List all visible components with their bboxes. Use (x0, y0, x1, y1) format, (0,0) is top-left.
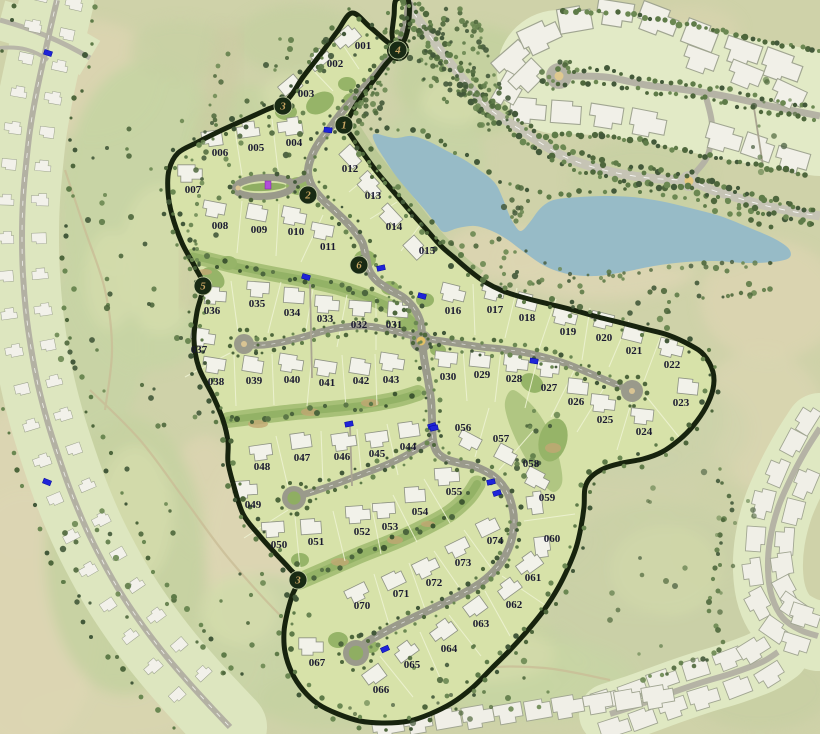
svg-text:006: 006 (212, 147, 229, 159)
svg-text:066: 066 (373, 684, 390, 696)
svg-text:012: 012 (342, 163, 359, 175)
svg-text:056: 056 (455, 422, 472, 434)
svg-text:028: 028 (506, 373, 523, 385)
svg-text:022: 022 (664, 359, 681, 371)
svg-text:070: 070 (354, 600, 371, 612)
svg-text:025: 025 (597, 414, 614, 426)
svg-text:1: 1 (341, 120, 347, 132)
svg-text:005: 005 (248, 142, 265, 154)
svg-text:057: 057 (493, 433, 510, 445)
svg-text:045: 045 (369, 448, 386, 460)
svg-text:072: 072 (426, 577, 443, 589)
svg-text:003: 003 (298, 88, 315, 100)
svg-text:029: 029 (474, 369, 491, 381)
svg-text:013: 013 (365, 190, 382, 202)
svg-text:3: 3 (294, 575, 301, 587)
svg-text:041: 041 (319, 377, 336, 389)
svg-text:007: 007 (185, 184, 202, 196)
svg-text:053: 053 (382, 521, 399, 533)
svg-text:035: 035 (249, 298, 266, 310)
svg-text:6: 6 (356, 260, 362, 272)
svg-text:014: 014 (386, 221, 403, 233)
svg-text:4: 4 (394, 45, 401, 57)
svg-text:030: 030 (440, 371, 457, 383)
svg-text:054: 054 (412, 506, 429, 518)
svg-text:046: 046 (334, 451, 351, 463)
svg-text:017: 017 (487, 304, 504, 316)
svg-text:059: 059 (539, 492, 556, 504)
svg-text:040: 040 (284, 374, 301, 386)
svg-text:038: 038 (208, 376, 225, 388)
svg-text:032: 032 (351, 319, 368, 331)
svg-text:031: 031 (386, 319, 403, 331)
svg-text:011: 011 (320, 241, 336, 253)
svg-text:071: 071 (393, 588, 410, 600)
svg-text:5: 5 (200, 281, 206, 293)
svg-text:073: 073 (455, 557, 472, 569)
svg-text:001: 001 (355, 40, 372, 52)
svg-text:048: 048 (254, 461, 271, 473)
svg-text:015: 015 (419, 245, 436, 257)
svg-text:036: 036 (204, 305, 221, 317)
svg-text:064: 064 (441, 643, 458, 655)
svg-text:051: 051 (308, 536, 325, 548)
svg-text:055: 055 (446, 486, 463, 498)
svg-text:037: 037 (191, 344, 208, 356)
svg-text:065: 065 (404, 659, 421, 671)
svg-text:050: 050 (271, 539, 288, 551)
svg-text:021: 021 (626, 345, 643, 357)
svg-text:019: 019 (560, 326, 577, 338)
svg-text:074: 074 (487, 535, 504, 547)
svg-text:2: 2 (304, 190, 311, 202)
svg-text:061: 061 (525, 572, 542, 584)
svg-text:049: 049 (245, 499, 262, 511)
svg-text:016: 016 (445, 305, 462, 317)
svg-text:002: 002 (327, 58, 344, 70)
svg-text:009: 009 (251, 224, 268, 236)
svg-text:3: 3 (279, 101, 286, 113)
svg-text:008: 008 (212, 220, 229, 232)
svg-text:018: 018 (519, 312, 536, 324)
svg-text:060: 060 (544, 533, 561, 545)
svg-text:044: 044 (400, 441, 417, 453)
svg-text:024: 024 (636, 426, 653, 438)
svg-text:062: 062 (506, 599, 523, 611)
svg-text:033: 033 (317, 313, 334, 325)
svg-text:026: 026 (568, 396, 585, 408)
svg-text:042: 042 (353, 375, 370, 387)
svg-text:067: 067 (309, 657, 326, 669)
svg-text:058: 058 (523, 458, 540, 470)
svg-text:039: 039 (246, 375, 263, 387)
svg-text:027: 027 (541, 382, 558, 394)
svg-text:004: 004 (286, 137, 303, 149)
svg-text:043: 043 (383, 374, 400, 386)
svg-text:023: 023 (673, 397, 690, 409)
svg-text:034: 034 (284, 307, 301, 319)
svg-text:047: 047 (294, 452, 311, 464)
svg-text:063: 063 (473, 618, 490, 630)
svg-text:020: 020 (596, 332, 613, 344)
svg-text:052: 052 (354, 526, 371, 538)
svg-text:010: 010 (288, 226, 305, 238)
